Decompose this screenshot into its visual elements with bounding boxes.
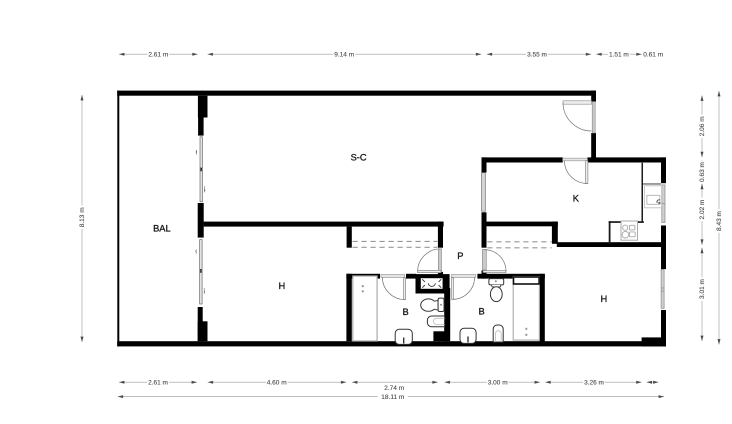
svg-text:3.26 m: 3.26 m <box>584 379 604 386</box>
svg-text:8.43 m: 8.43 m <box>716 211 723 231</box>
svg-text:18.11 m: 18.11 m <box>381 394 404 401</box>
svg-text:2.61 m: 2.61 m <box>148 51 168 58</box>
svg-text:P: P <box>457 251 463 261</box>
svg-text:H: H <box>279 281 286 291</box>
svg-text:B: B <box>478 307 484 317</box>
svg-text:0.61 m: 0.61 m <box>643 51 663 58</box>
svg-text:S-C: S-C <box>351 153 367 163</box>
svg-text:2.61 m: 2.61 m <box>148 379 168 386</box>
svg-text:2.06 m: 2.06 m <box>699 116 706 136</box>
svg-text:H: H <box>601 294 608 304</box>
svg-text:B: B <box>402 307 408 317</box>
svg-text:K: K <box>573 194 580 204</box>
svg-text:9.14 m: 9.14 m <box>334 51 354 58</box>
svg-text:2.02 m: 2.02 m <box>699 200 706 220</box>
svg-text:BAL: BAL <box>153 224 171 234</box>
svg-text:2.74 m: 2.74 m <box>384 385 404 392</box>
svg-text:3.01 m: 3.01 m <box>699 279 706 299</box>
svg-text:0.63 m: 0.63 m <box>699 162 706 182</box>
svg-text:3.55 m: 3.55 m <box>527 51 547 58</box>
svg-text:8.13 m: 8.13 m <box>79 207 86 227</box>
svg-text:1.51 m: 1.51 m <box>609 51 629 58</box>
svg-text:4.60 m: 4.60 m <box>267 379 287 386</box>
svg-text:3.00 m: 3.00 m <box>488 379 508 386</box>
